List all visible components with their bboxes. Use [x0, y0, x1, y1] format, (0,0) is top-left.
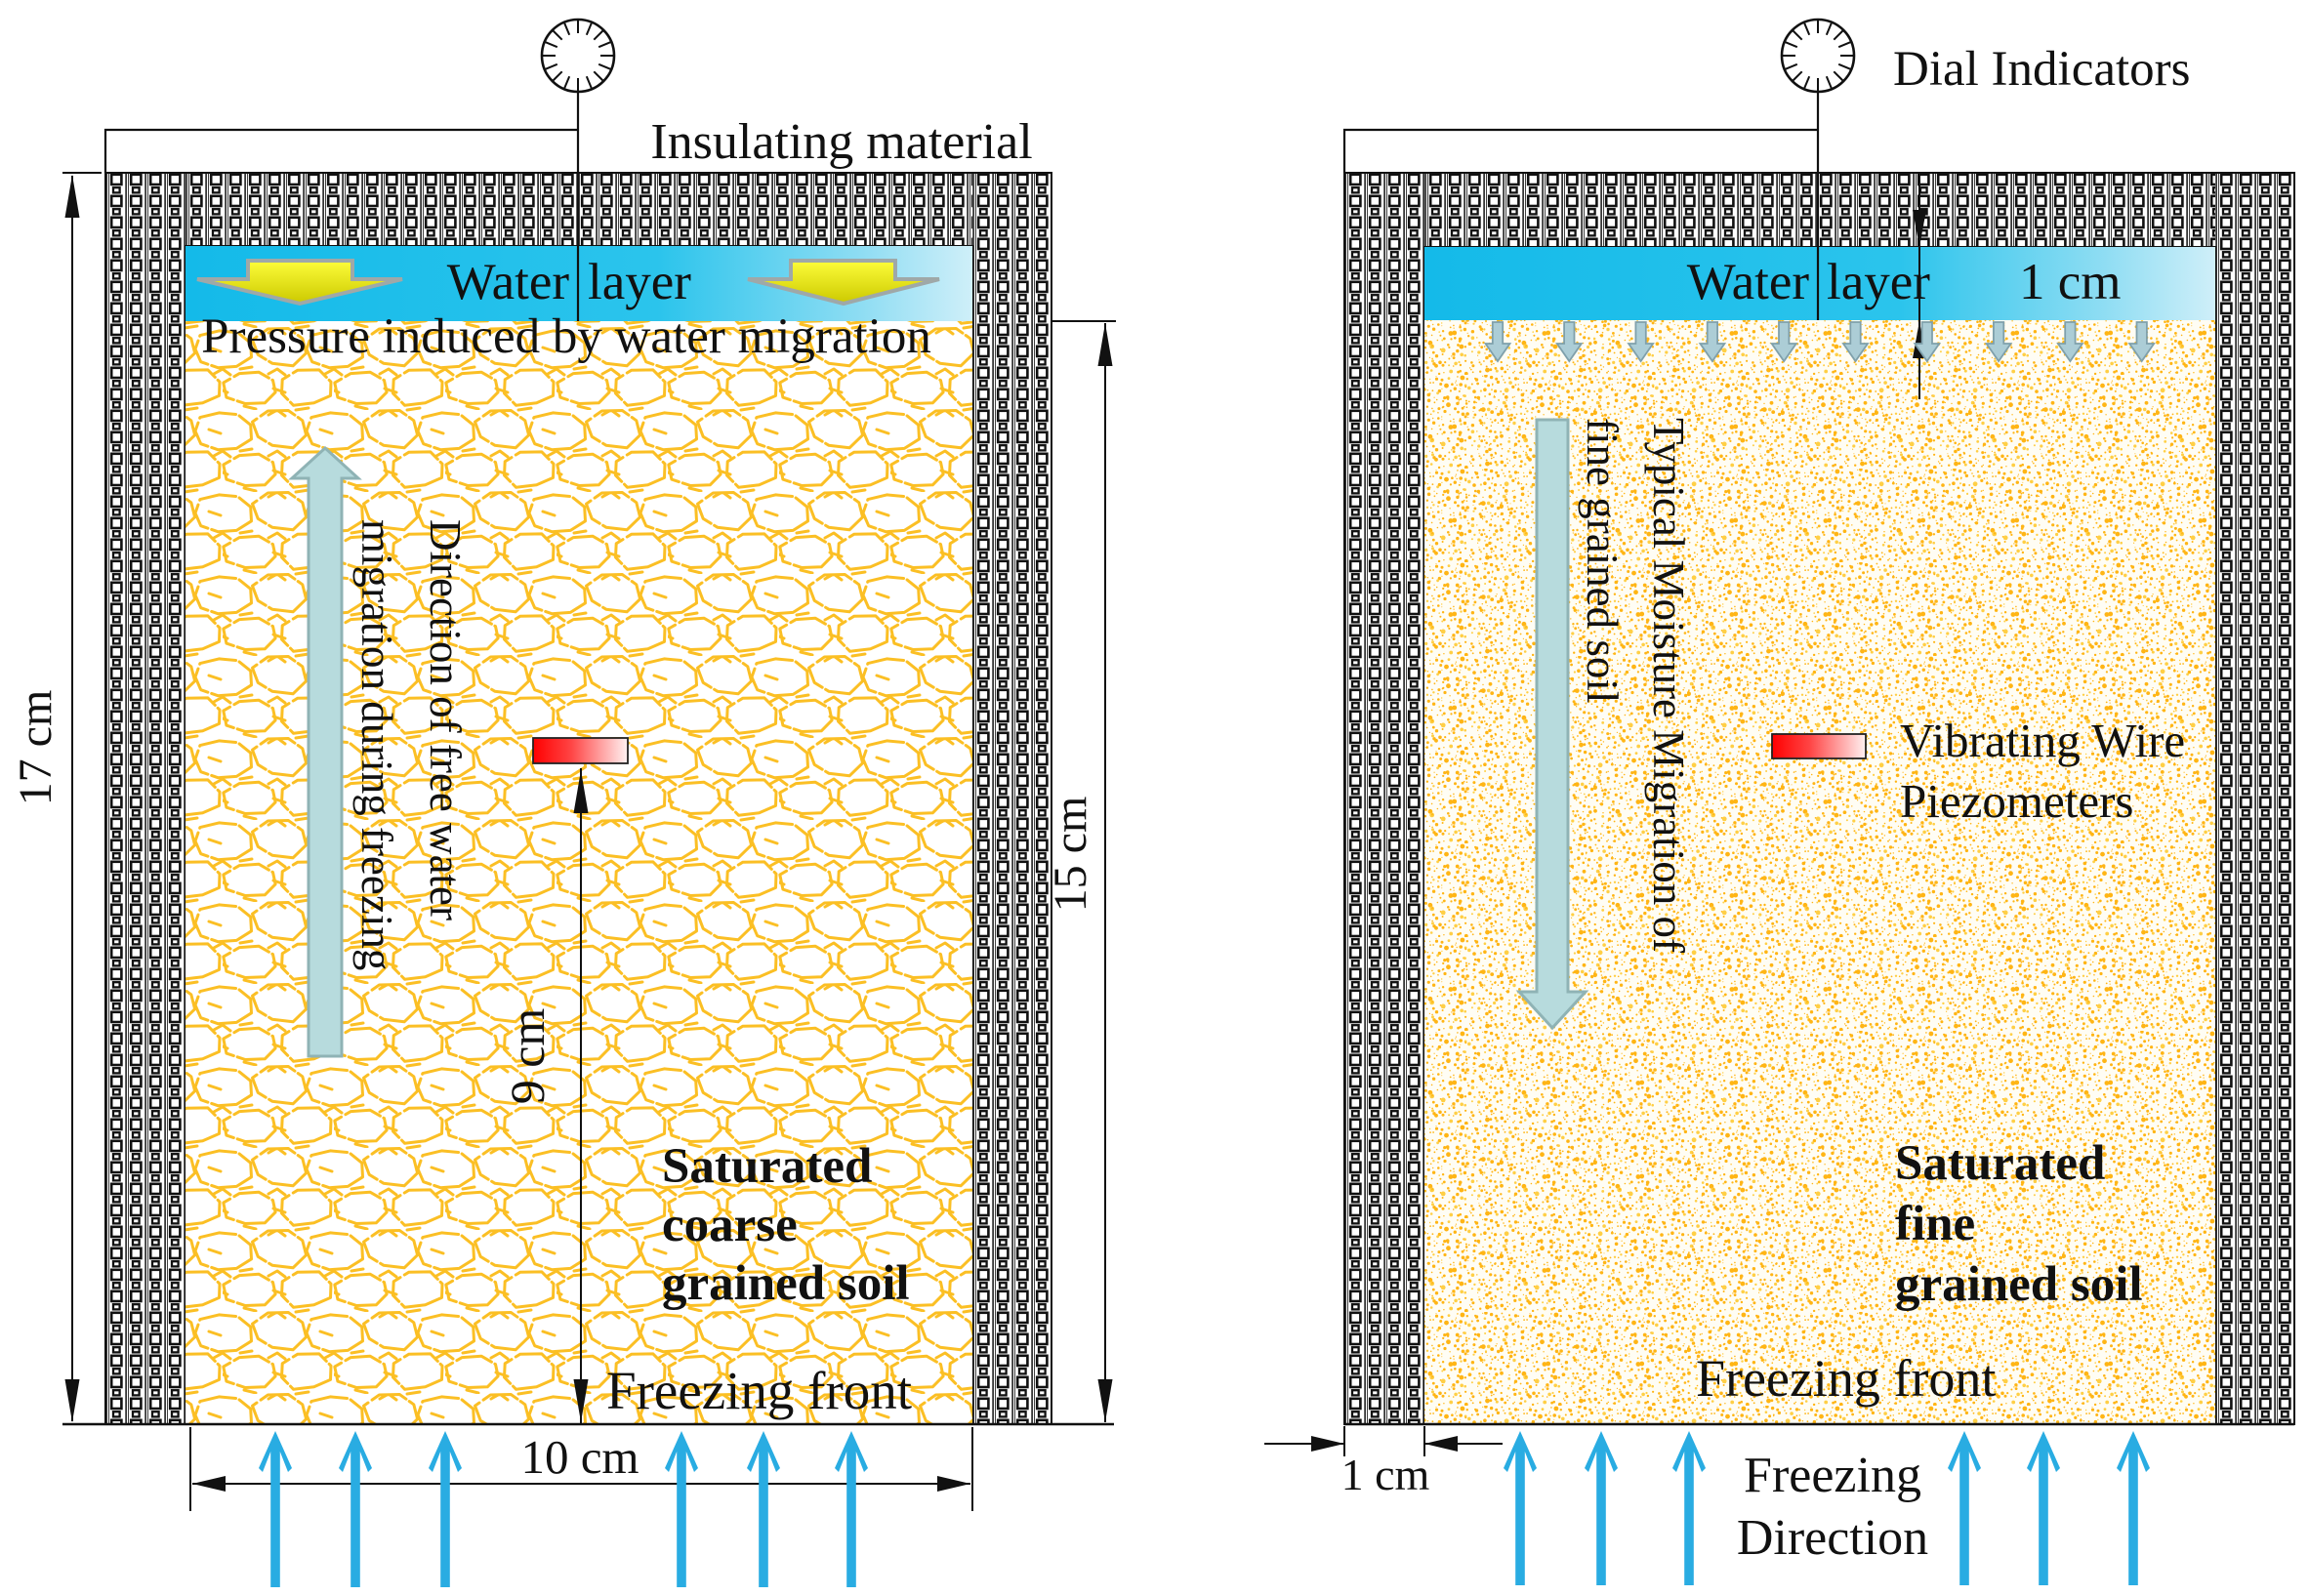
svg-text:Freezing: Freezing: [1744, 1448, 1921, 1503]
svg-text:Pressure induced by water migr: Pressure induced by water migration: [201, 309, 931, 364]
svg-text:Water: Water: [447, 254, 570, 310]
svg-text:fine: fine: [1895, 1197, 1975, 1251]
svg-text:17 cm: 17 cm: [10, 690, 62, 806]
svg-text:1 cm: 1 cm: [1341, 1450, 1430, 1499]
svg-text:Water: Water: [1687, 254, 1810, 310]
svg-text:Freezing front: Freezing front: [1696, 1349, 1996, 1408]
svg-text:grained soil: grained soil: [1895, 1257, 2143, 1312]
svg-text:15 cm: 15 cm: [1045, 797, 1096, 913]
svg-text:layer: layer: [1827, 254, 1930, 310]
svg-text:Dial Indicators: Dial Indicators: [1893, 42, 2190, 97]
svg-text:1 cm: 1 cm: [2019, 254, 2122, 310]
svg-text:grained soil: grained soil: [662, 1256, 910, 1311]
svg-text:Saturated: Saturated: [1895, 1136, 2105, 1191]
svg-text:Direction: Direction: [1737, 1510, 1928, 1566]
svg-text:10 cm: 10 cm: [520, 1430, 639, 1484]
svg-text:Piezometers: Piezometers: [1900, 774, 2133, 828]
svg-text:Saturated: Saturated: [662, 1139, 872, 1194]
svg-text:Insulating material: Insulating material: [650, 114, 1032, 170]
svg-text:Vibrating Wire: Vibrating Wire: [1900, 714, 2185, 767]
svg-text:Freezing front: Freezing front: [606, 1361, 912, 1420]
svg-text:coarse: coarse: [662, 1198, 798, 1252]
svg-text:9 cm: 9 cm: [500, 1008, 555, 1105]
svg-text:layer: layer: [588, 254, 691, 310]
